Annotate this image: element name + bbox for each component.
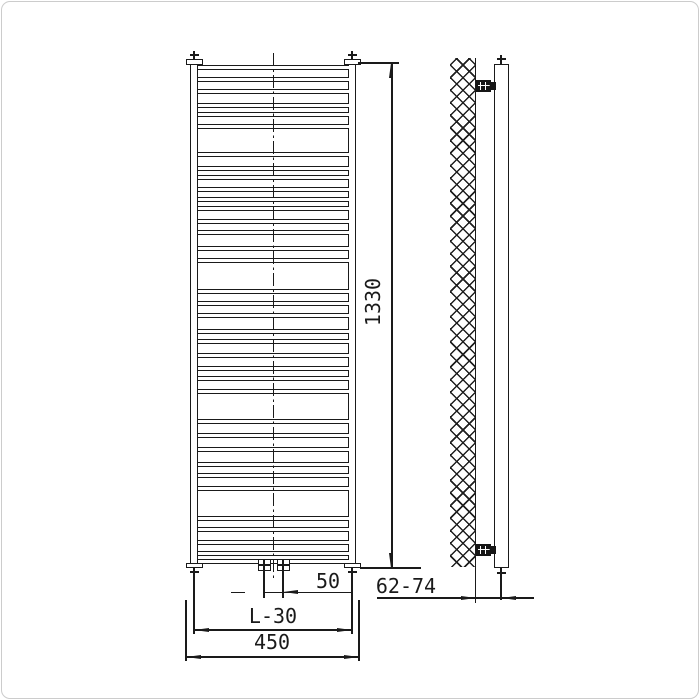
depth-arrow-right-icon	[501, 596, 516, 600]
width-arrow-left-icon	[186, 655, 201, 659]
valve-dim-tail-dash	[231, 592, 245, 594]
pitch-arrow-left-icon	[194, 628, 209, 632]
valve-ext-line-left	[263, 571, 265, 598]
valve-arrow-icon	[283, 590, 298, 594]
width-arrow-right-icon	[344, 655, 359, 659]
width-ext-line-left	[185, 600, 187, 661]
width-ext-line-right	[358, 600, 360, 661]
height-dim-label: 1330	[363, 278, 383, 326]
height-arrow-bottom-icon	[389, 553, 393, 568]
width-dim-label: 450	[254, 632, 290, 652]
pitch-ext-line-right	[351, 576, 353, 634]
depth-arrow-left-icon	[461, 596, 476, 600]
width-dim-line	[186, 656, 359, 658]
depth-dim-label: 62-74	[376, 576, 436, 596]
dimensions: 1330 50 L-30 450 62-74	[0, 0, 700, 700]
pitch-dim-label: L-30	[249, 606, 297, 626]
radiator-technical-drawing: 1330 50 L-30 450 62-74	[0, 0, 700, 700]
height-dim-line	[391, 63, 393, 568]
pitch-arrow-right-icon	[337, 628, 352, 632]
height-arrow-top-icon	[389, 63, 393, 78]
valve-dim-label: 50	[316, 571, 340, 591]
pitch-ext-line-left	[193, 576, 195, 634]
